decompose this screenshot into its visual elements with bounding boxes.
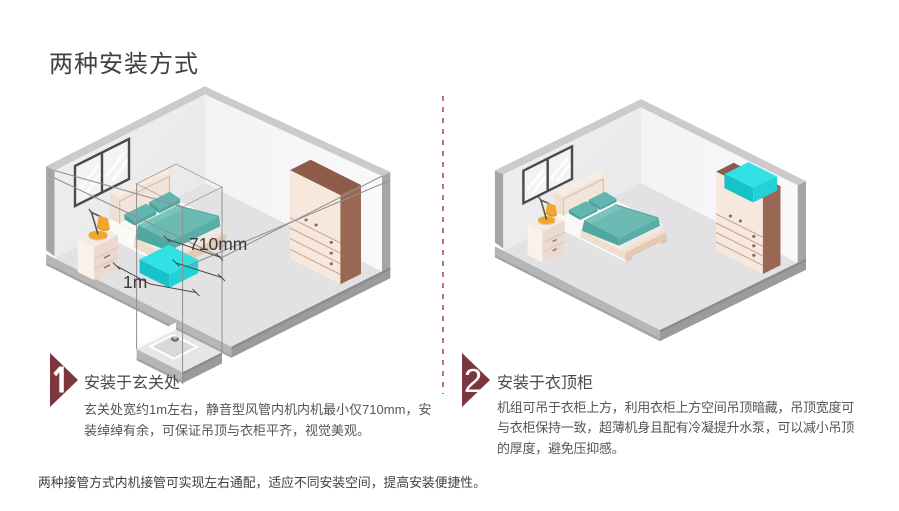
svg-text:710mm: 710mm xyxy=(189,234,247,254)
svg-text:2: 2 xyxy=(464,362,482,399)
svg-text:1m: 1m xyxy=(123,272,147,292)
